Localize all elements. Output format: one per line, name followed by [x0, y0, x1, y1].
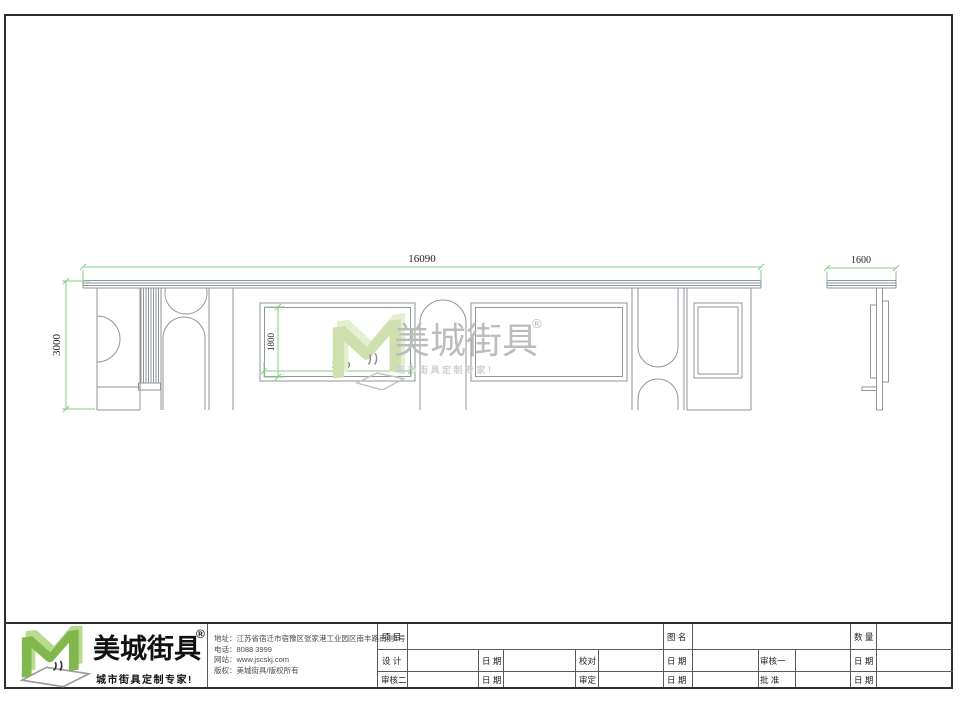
dome-arch	[638, 379, 678, 410]
titleblock-label-date: 日 期	[667, 674, 686, 686]
titleblock-label-approve: 审定	[579, 674, 596, 686]
titleblock-label-proofread: 校对	[579, 655, 596, 667]
titleblock-label-ratify: 批 准	[760, 674, 779, 686]
titleblock-label-review2: 审核二	[381, 674, 407, 686]
titleblock-label-date: 日 期	[482, 655, 501, 667]
table-vline	[850, 624, 851, 687]
arch-opening	[163, 317, 205, 410]
dim-front-width	[80, 264, 764, 280]
table-vline	[876, 624, 877, 687]
dim-side-width-label: 1600	[851, 255, 871, 266]
titleblock-label-date: 日 期	[667, 655, 686, 667]
arch-bay-right	[632, 288, 684, 410]
table-hline	[377, 671, 953, 672]
table-vline	[663, 624, 664, 687]
table-vline	[407, 624, 408, 687]
watermark-slogan: 城市街具定制专家!	[396, 363, 494, 376]
right-wall	[687, 288, 751, 410]
side-elevation	[827, 281, 896, 411]
table-vline	[478, 649, 479, 687]
dim-front-height-label: 3000	[51, 334, 63, 357]
arch-bay-left	[161, 288, 233, 410]
titleblock-label-quantity: 数 量	[854, 631, 873, 643]
table-hline	[377, 649, 953, 650]
titleblock-label-date: 日 期	[854, 655, 873, 667]
table-vline	[575, 649, 576, 687]
louver-column	[139, 288, 161, 390]
titleblock-label-date: 日 期	[854, 674, 873, 686]
logo-m-front	[333, 319, 401, 378]
company-website: 网站：www.jscskj.com	[214, 655, 372, 666]
watermark-registered-mark: ®	[532, 316, 542, 331]
dim-front-width-label: 16090	[408, 253, 436, 265]
half-circle	[97, 316, 120, 362]
company-copyright: 版权：美城街具/版权所有	[214, 666, 372, 677]
dim-panel-height-label: 1800	[266, 333, 276, 352]
table-vline	[758, 649, 759, 687]
company-slogan: 城市街具定制专家!	[96, 671, 193, 686]
titleblock-label-date: 日 期	[482, 674, 501, 686]
panel-profile-right	[883, 301, 889, 382]
table-vline	[795, 649, 796, 687]
side-roof	[827, 281, 896, 289]
company-registered-mark: ®	[196, 627, 205, 641]
company-info: 地址：江苏省宿迁市宿豫区张家港工业园区南丰路南侧1号 电话：8088 3999 …	[214, 634, 372, 676]
circle-detail	[165, 288, 207, 314]
dim-front-height	[62, 278, 95, 412]
watermark-brand-text: 美城街具	[394, 321, 538, 361]
table-vline	[598, 649, 599, 687]
table-vline	[503, 649, 504, 687]
side-post	[862, 288, 889, 410]
titleblock-label-design: 设 计	[382, 655, 401, 667]
titleblock-label-drawing-name: 图 名	[667, 631, 686, 643]
titleblock-bottom-rule	[4, 687, 953, 689]
left-wall	[97, 288, 140, 410]
round-bottom-slot	[638, 288, 678, 367]
table-vline	[692, 624, 693, 687]
drawing-sheet: 16090 3000 1600 1800 3660 美城街具 ® 城市街具定制专…	[0, 0, 960, 704]
company-logo-icon	[18, 626, 98, 688]
company-brand-text: 美城街具	[93, 632, 201, 666]
company-address: 地址：江苏省宿迁市宿豫区张家港工业园区南丰路南侧1号	[214, 634, 372, 645]
dim-side-width	[824, 265, 899, 280]
panel-profile-left	[871, 305, 877, 378]
front-roof	[83, 281, 761, 289]
divider-logo-company	[207, 624, 208, 687]
logo-m-front	[22, 630, 79, 678]
company-phone: 电话：8088 3999	[214, 645, 372, 656]
titleblock-top-rule	[4, 622, 953, 624]
foot-bracket	[862, 387, 877, 391]
titleblock-label-review1: 审核一	[760, 655, 786, 667]
